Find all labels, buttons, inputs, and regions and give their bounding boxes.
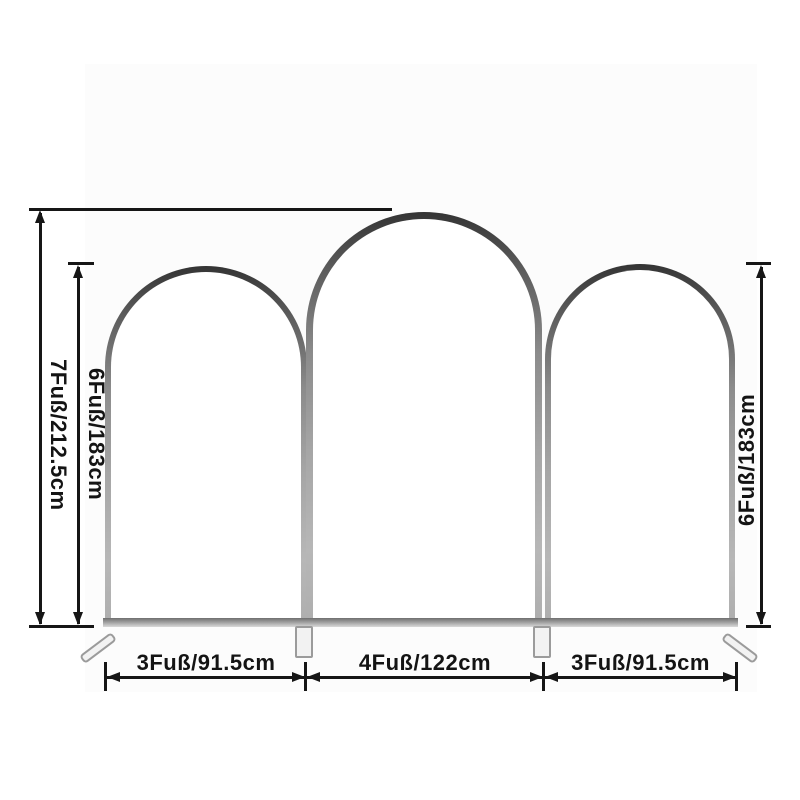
arch-frame-left (105, 266, 307, 625)
extension-line-bottom-left (29, 625, 94, 628)
dimension-line-width-right (545, 676, 736, 679)
dimension-diagram: 7Fuß/212.5cm 6Fuß/183cm 6Fuß/183cm 3Fuß/… (0, 0, 800, 800)
overall-height-label: 7Fuß/212.5cm (44, 352, 72, 517)
left-height-label: 6Fuß/183cm (82, 363, 110, 505)
arch-right-opening (551, 270, 729, 625)
arrowhead-up-icon (35, 210, 45, 223)
tick-right-arch-bottom (746, 625, 771, 628)
arch-frame-right (545, 264, 735, 625)
arch-middle-opening (313, 219, 535, 625)
dimension-line-width-left (107, 676, 305, 679)
arrowhead-down-icon (756, 612, 766, 625)
arrowhead-down-icon (35, 612, 45, 625)
arch-left-opening (111, 272, 301, 625)
right-height-label: 6Fuß/183cm (733, 389, 761, 531)
arrowhead-up-icon (756, 265, 766, 278)
arrowhead-up-icon (73, 265, 83, 278)
width-left-label: 3Fuß/91.5cm (107, 650, 305, 676)
extension-line-top (29, 208, 392, 211)
width-right-label: 3Fuß/91.5cm (545, 650, 736, 676)
arrowhead-down-icon (73, 612, 83, 625)
base-bar (103, 618, 738, 627)
width-middle-label: 4Fuß/122cm (307, 650, 543, 676)
dimension-line-width-middle (307, 676, 543, 679)
dimension-line-overall-height (39, 213, 42, 624)
dimension-line-left-height (77, 267, 80, 624)
arch-frame-middle (306, 212, 542, 625)
